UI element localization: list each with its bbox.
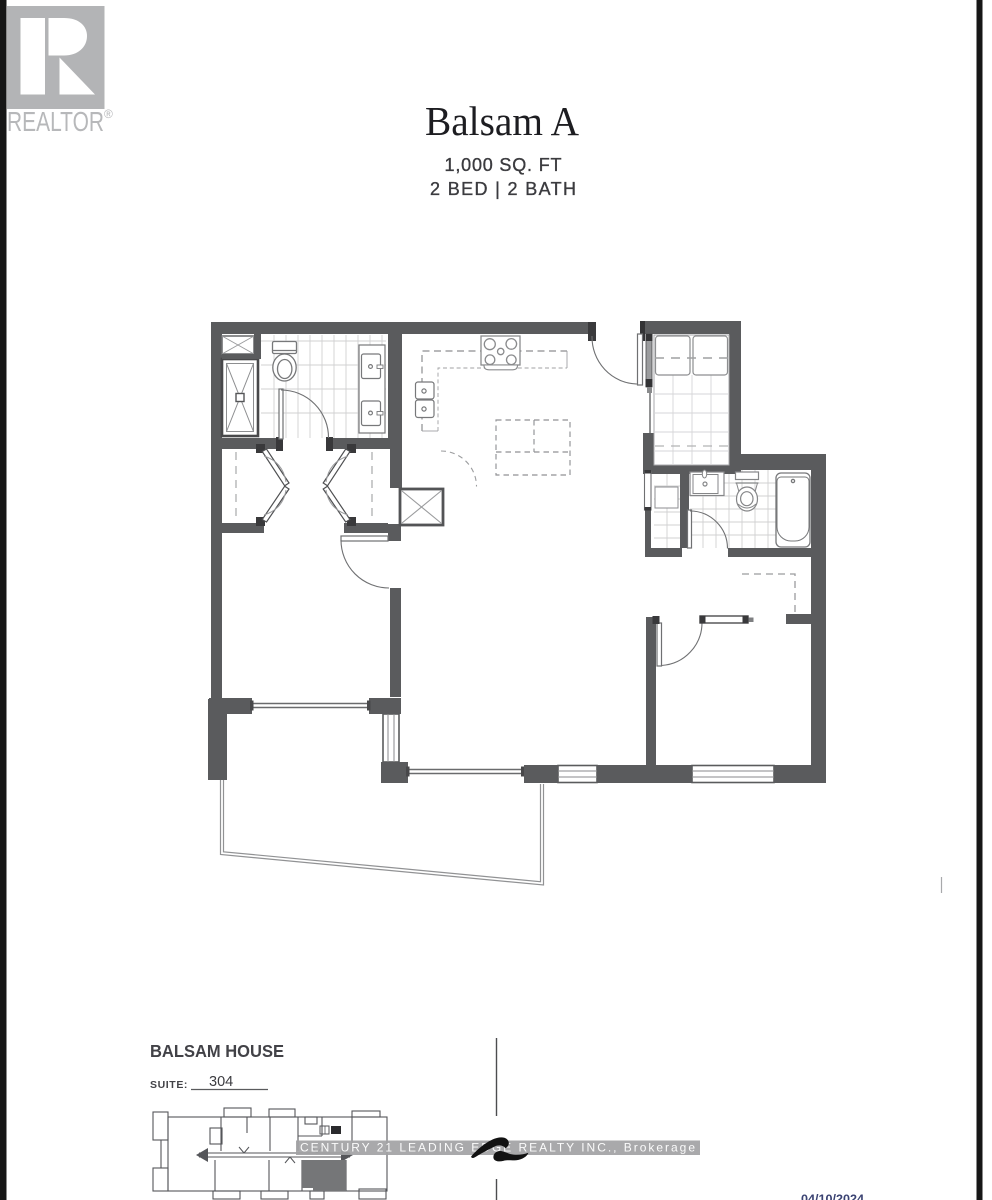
svg-text:Balsam A: Balsam A: [425, 98, 579, 144]
svg-text:SUITE:: SUITE:: [150, 1079, 188, 1091]
svg-text:1,000 SQ. FT: 1,000 SQ. FT: [445, 155, 562, 175]
svg-text:304: 304: [209, 1074, 233, 1090]
svg-text:04/10/2024: 04/10/2024: [801, 1194, 865, 1200]
svg-text:BALSAM HOUSE: BALSAM HOUSE: [150, 1041, 284, 1061]
svg-text:®: ®: [104, 107, 113, 121]
svg-text:2 BED | 2 BATH: 2 BED | 2 BATH: [430, 179, 576, 199]
svg-text:REALTOR: REALTOR: [7, 106, 104, 137]
